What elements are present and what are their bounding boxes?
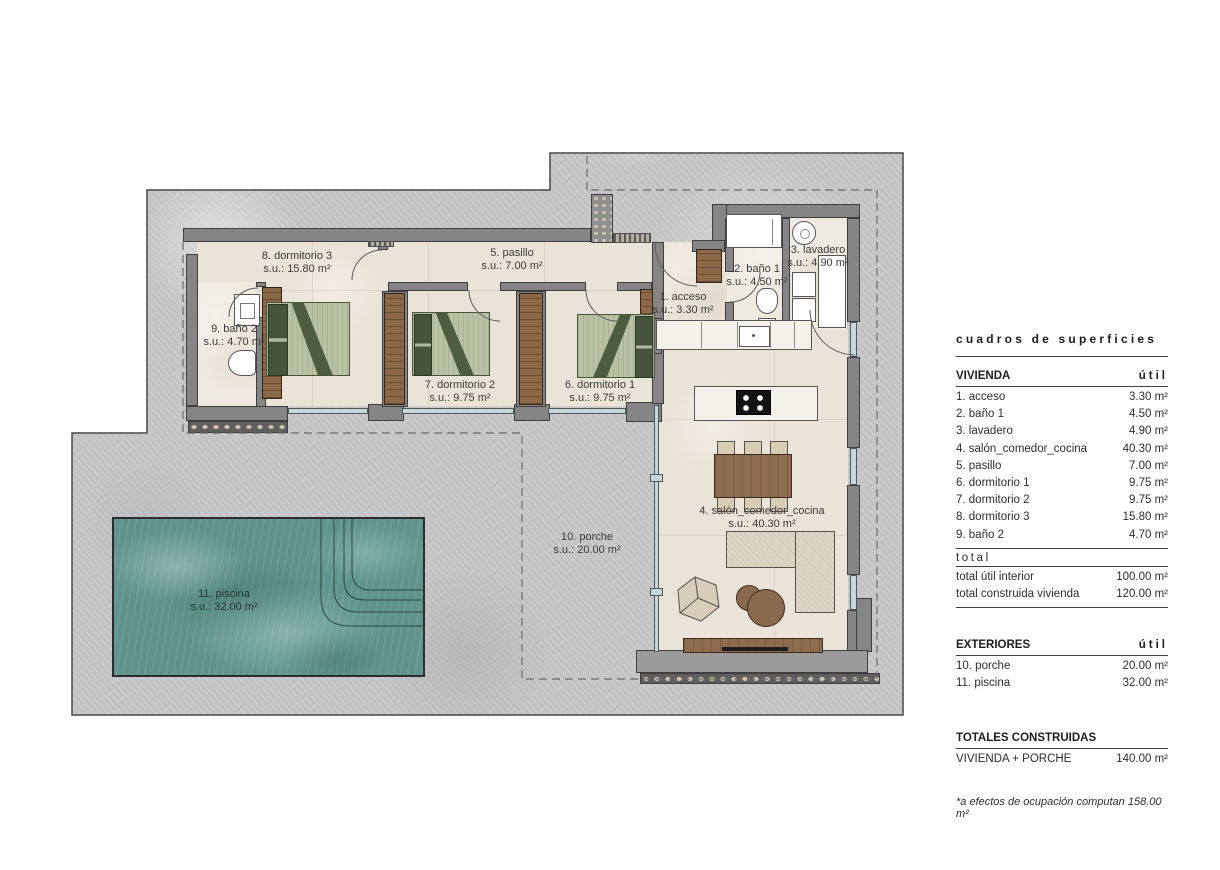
pebble-border — [188, 421, 288, 433]
window — [548, 408, 626, 414]
table-row: 2. baño 14.50 m² — [956, 406, 1168, 423]
table-row: 7. dormitorio 29.75 m² — [956, 492, 1168, 509]
table-row: total útil interior100.00 m² — [956, 569, 1168, 586]
wall — [500, 282, 586, 291]
sofa-chaise — [795, 531, 835, 613]
floor-plan-sheet: 1. accesos.u.: 3.30 m² 2. baño 1s.u.: 4.… — [0, 0, 1220, 870]
util-column-header: útil — [1139, 370, 1168, 382]
terrace-step — [636, 650, 868, 673]
total-label: total — [956, 549, 1168, 566]
room-label-piscina: 11. piscinas.u.: 32.00 m² — [159, 588, 289, 613]
wall — [856, 598, 872, 652]
bed-dormitorio-2 — [412, 312, 490, 376]
vivienda-rows: 1. acceso3.30 m² 2. baño 14.50 m² 3. lav… — [956, 387, 1168, 548]
exteriores-rows: 10. porche20.00 m² 11. piscina32.00 m² — [956, 656, 1168, 696]
room-label-lavadero: 3. lavaderos.u.: 4.90 m² — [753, 244, 883, 269]
window — [850, 448, 857, 485]
entry-doormat — [613, 233, 651, 243]
totales-header: TOTALES CONSTRUIDAS — [956, 732, 1096, 744]
room-label-dormitorio-1: 6. dormitorio 1s.u.: 9.75 m² — [535, 379, 665, 404]
glass-mullion — [650, 474, 663, 482]
bed-pillows — [635, 316, 653, 378]
window — [402, 408, 514, 414]
vivienda-header-row: VIVIENDA útil — [956, 365, 1168, 387]
footnote: *a efectos de ocupación computan 158.00 … — [956, 796, 1168, 820]
util-column-header: útil — [1139, 639, 1168, 651]
wall — [186, 406, 288, 421]
kitchen-counter — [656, 320, 812, 350]
window — [850, 322, 857, 357]
laundry-unit — [792, 298, 816, 322]
room-label-acceso: 1. accesos.u.: 3.30 m² — [618, 291, 748, 316]
room-label-pasillo: 5. pasillos.u.: 7.00 m² — [447, 247, 577, 272]
table-row: 4. salón_comedor_cocina40.30 m² — [956, 441, 1168, 458]
stone-pillar — [591, 194, 613, 243]
vivienda-header: VIVIENDA — [956, 370, 1010, 382]
totales-rows: VIVIENDA + PORCHE140.00 m² — [956, 749, 1168, 772]
room-label-bano2: 9. baño 2s.u.: 4.70 m² — [169, 323, 299, 348]
room-label-porche: 10. porches.u.: 20.00 m² — [522, 531, 652, 556]
toilet — [756, 288, 778, 314]
tv-screen — [722, 647, 788, 651]
table-row: 11. piscina32.00 m² — [956, 675, 1168, 692]
table-row: 3. lavadero4.90 m² — [956, 423, 1168, 440]
pouf — [747, 589, 785, 627]
shower — [726, 214, 782, 248]
glass-mullion — [650, 588, 663, 596]
room-label-dormitorio-2: 7. dormitorio 2s.u.: 9.75 m² — [395, 379, 525, 404]
wall — [847, 485, 860, 575]
totales-header-row: TOTALES CONSTRUIDAS — [956, 727, 1168, 749]
surface-table-title: cuadros de superficies — [956, 332, 1168, 357]
bed-pillows — [414, 314, 432, 376]
vivienda-totals: total útil interior100.00 m² total const… — [956, 567, 1168, 607]
room-label-dormitorio-3: 8. dormitorio 3s.u.: 15.80 m² — [232, 250, 362, 275]
wall — [388, 282, 468, 291]
vent-grille — [368, 241, 394, 247]
table-row: 9. baño 24.70 m² — [956, 527, 1168, 544]
toilet — [228, 350, 256, 376]
exteriores-header-row: EXTERIORES útil — [956, 634, 1168, 656]
table-row: VIVIENDA + PORCHE140.00 m² — [956, 751, 1168, 768]
pebble-border — [640, 673, 880, 684]
table-row: 5. pasillo7.00 m² — [956, 458, 1168, 475]
wall — [847, 218, 860, 322]
induction-hob — [736, 390, 771, 415]
table-row: 6. dormitorio 19.75 m² — [956, 475, 1168, 492]
washing-machine — [792, 221, 816, 245]
wall — [183, 228, 591, 242]
exteriores-header: EXTERIORES — [956, 639, 1030, 651]
surface-table: cuadros de superficies VIVIENDA útil 1. … — [956, 332, 1168, 820]
wall — [847, 357, 860, 448]
window — [850, 575, 857, 610]
table-row: 8. dormitorio 315.80 m² — [956, 509, 1168, 526]
bathroom-sink — [234, 294, 260, 326]
glass-wall — [654, 405, 659, 652]
room-label-salon: 4. salón_comedor_cocinas.u.: 40.30 m² — [672, 505, 852, 530]
bed-dormitorio-1 — [577, 314, 655, 378]
divider — [956, 607, 1168, 608]
window — [288, 408, 368, 414]
table-row: total construida vivienda120.00 m² — [956, 586, 1168, 603]
table-row: 10. porche20.00 m² — [956, 658, 1168, 675]
kitchen-sink — [739, 326, 770, 347]
table-row: 1. acceso3.30 m² — [956, 389, 1168, 406]
kitchen-island — [694, 386, 818, 421]
dining-table — [714, 454, 792, 498]
